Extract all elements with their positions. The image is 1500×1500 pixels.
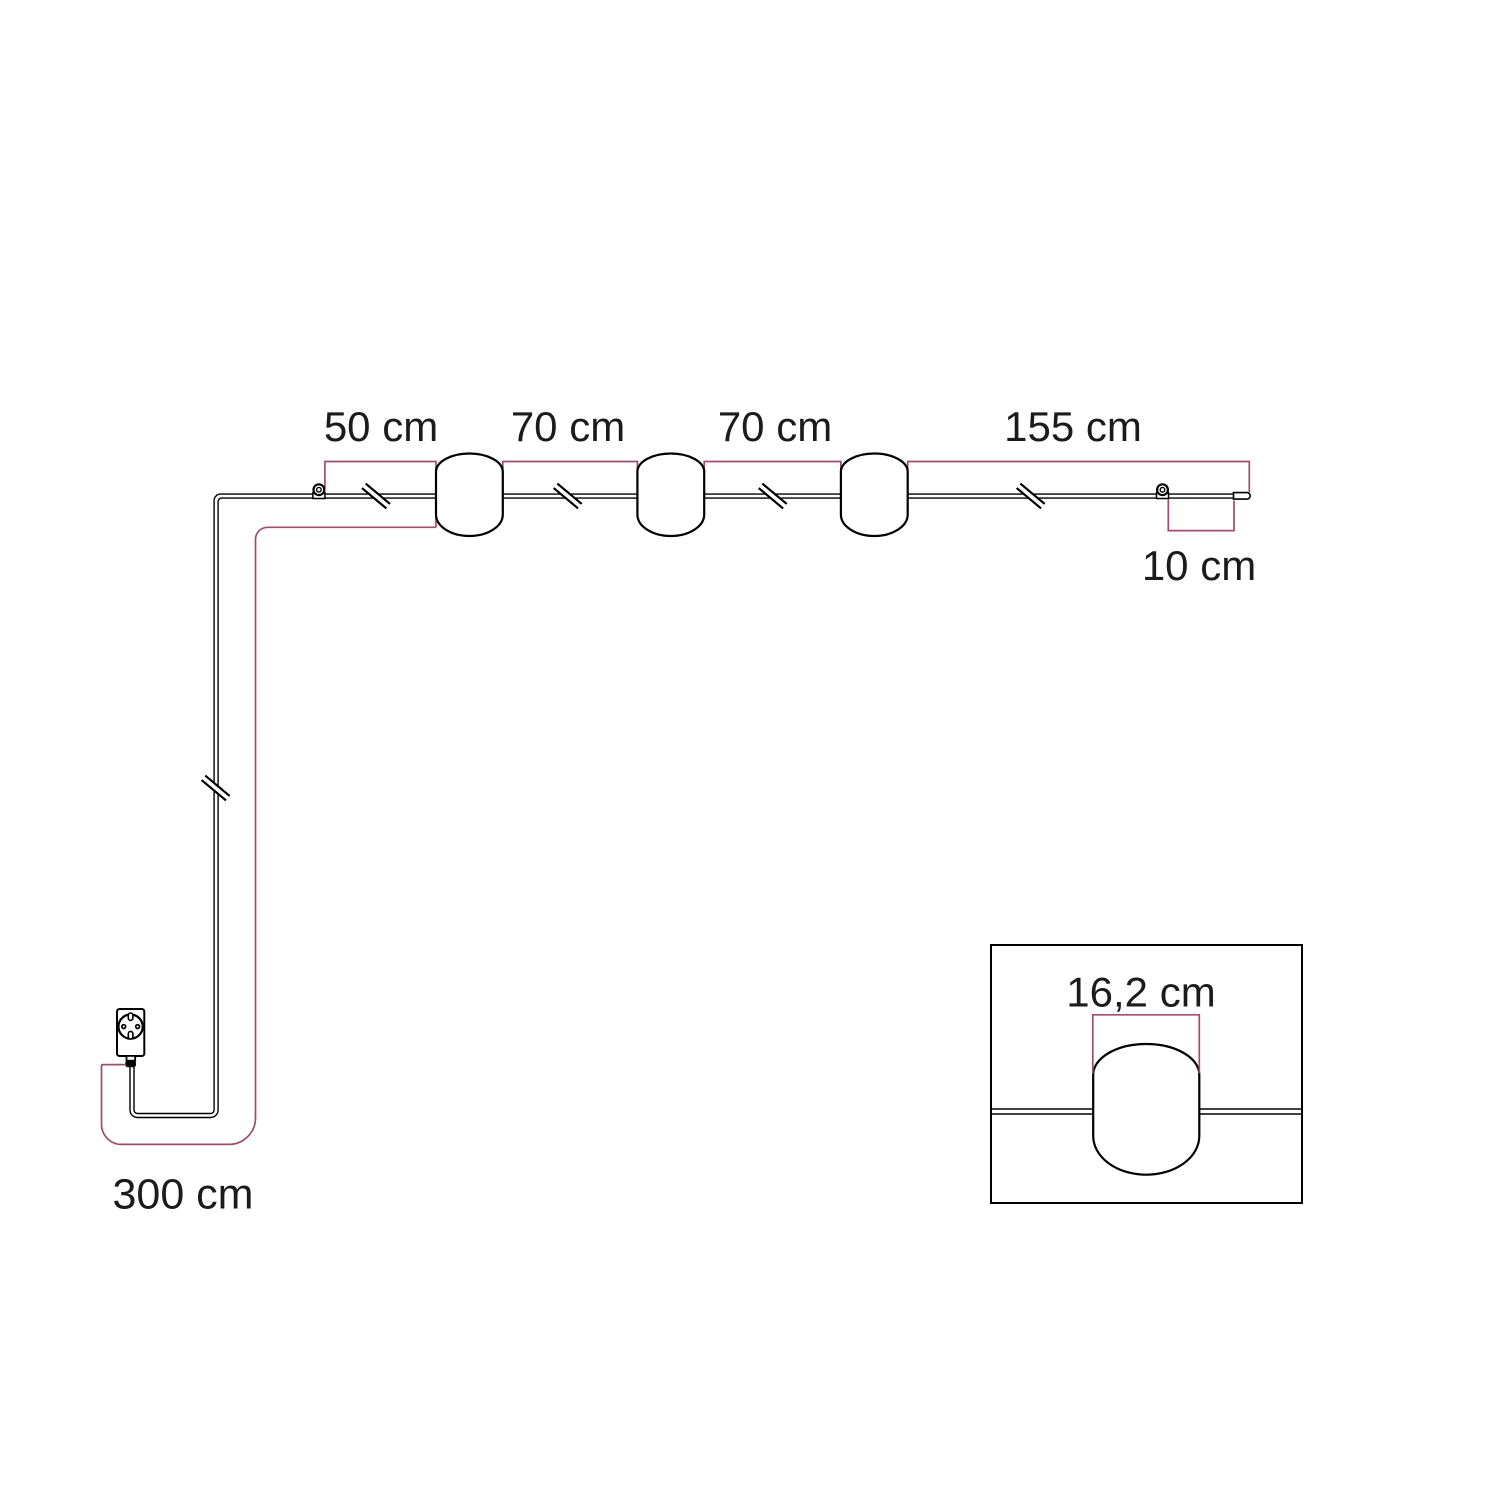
- svg-text:70 cm: 70 cm: [718, 403, 832, 450]
- svg-text:16,2 cm: 16,2 cm: [1066, 969, 1215, 1016]
- svg-text:155 cm: 155 cm: [1004, 403, 1142, 450]
- svg-text:70 cm: 70 cm: [511, 403, 625, 450]
- svg-text:300 cm: 300 cm: [112, 1171, 253, 1219]
- svg-text:10 cm: 10 cm: [1142, 542, 1256, 589]
- svg-text:50 cm: 50 cm: [324, 403, 438, 450]
